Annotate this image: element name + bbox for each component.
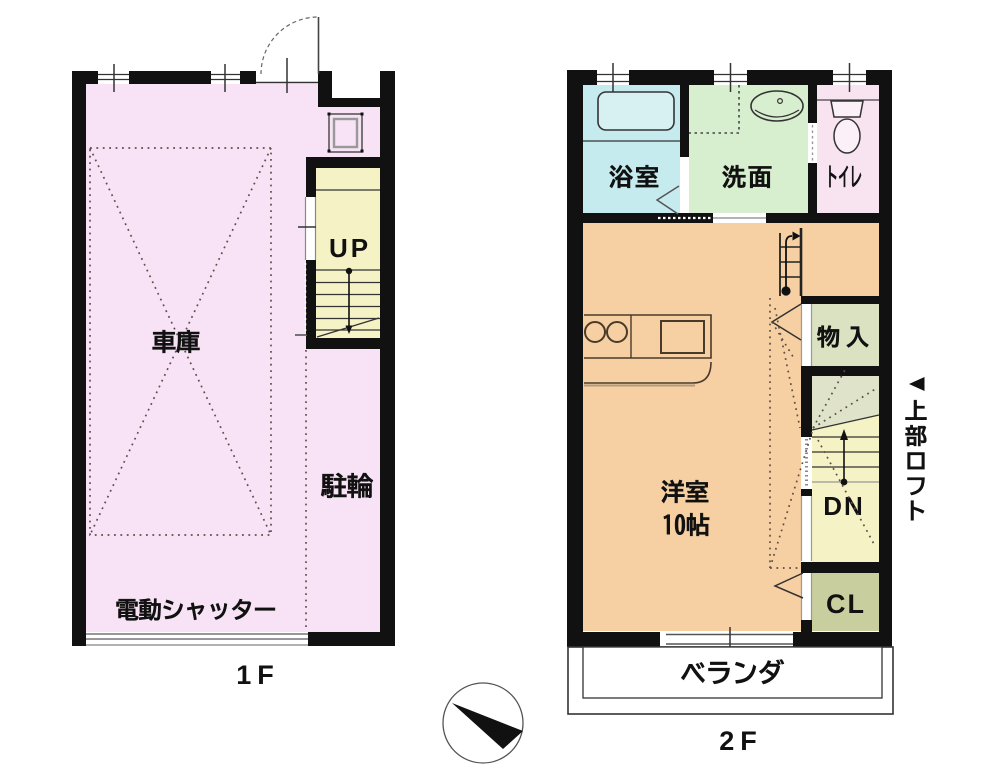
svg-text:2F: 2F [719,726,763,756]
svg-text:DN: DN [823,491,865,521]
svg-text:UP: UP [329,233,371,263]
svg-text:CL: CL [826,589,866,619]
svg-text:1F: 1F [236,660,280,690]
